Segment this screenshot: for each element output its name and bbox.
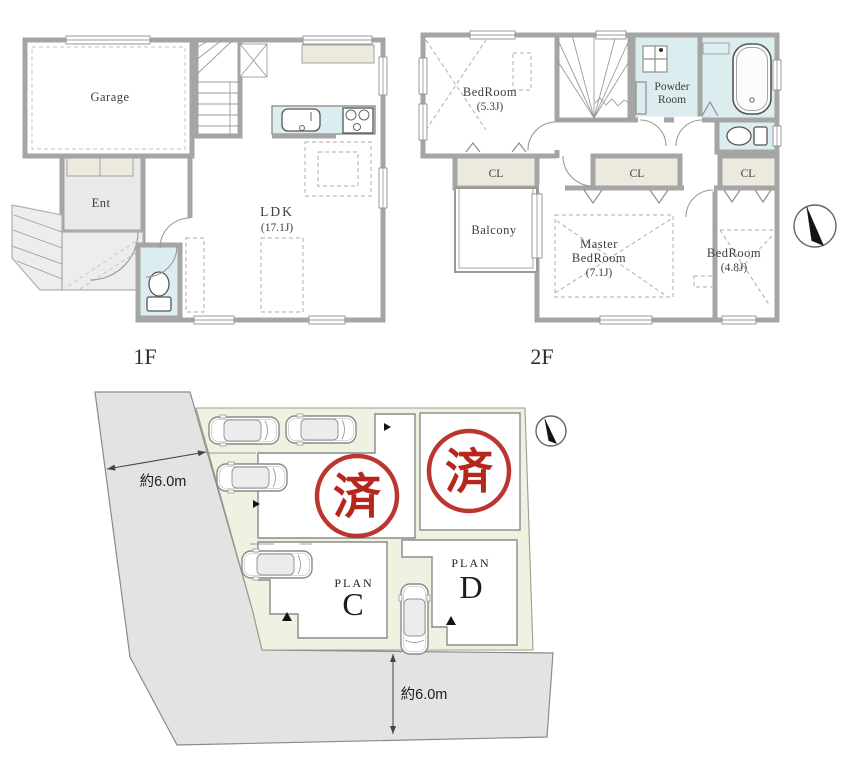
car-icon	[209, 415, 279, 446]
closet-c-label: CL	[741, 168, 756, 180]
floorplan-drawing: Garage Ent LDK (17.1J) 1F	[0, 0, 852, 768]
2f-north-compass-icon	[794, 205, 836, 247]
plan-d-word: PLAN	[451, 556, 490, 570]
sold-stamp-text: 済	[445, 444, 494, 500]
bedroom2-size-label: (4.8J)	[721, 262, 748, 274]
1f-stairs	[196, 40, 240, 136]
sold-stamp-right: 済	[429, 431, 509, 511]
site-plan: 済 済 PLAN C PLAN D 約6.0m 約6.0m	[95, 392, 566, 745]
plan-d-letter: D	[459, 569, 482, 605]
balcony-label: Balcony	[471, 223, 516, 237]
floor1-title: 1F	[133, 344, 156, 369]
floor2-title: 2F	[530, 344, 553, 369]
kitchen-stove-icon	[343, 108, 373, 133]
powder-label-2: Room	[658, 94, 686, 106]
road-width-west-label: 約6.0m	[140, 473, 187, 490]
bathtub-icon	[733, 44, 771, 114]
kitchen-sink-icon	[282, 109, 320, 131]
plan-c-letter: C	[342, 586, 363, 622]
master-label-2: BedRoom	[572, 251, 626, 265]
2f-master-door-gap	[539, 185, 565, 192]
bedroom1-size-label: (5.3J)	[477, 101, 504, 113]
toilet-tank-icon	[147, 297, 171, 311]
master-size-label: (7.1J)	[586, 267, 613, 279]
master-label-1: Master	[580, 237, 618, 251]
car-icon	[286, 414, 356, 445]
floor-2f-plan: BedRoom (5.3J) Powder Room CL CL CL Balc…	[419, 31, 836, 369]
floorplan-sheet: Garage Ent LDK (17.1J) 1F	[0, 0, 852, 768]
sold-stamp-text: 済	[333, 469, 382, 525]
ldk-label: LDK	[260, 204, 294, 219]
ldk-size-label: (17.1J)	[261, 222, 293, 234]
toilet-bowl-icon	[149, 272, 169, 296]
car-icon	[242, 549, 312, 580]
2f-toilet-icon	[727, 127, 767, 145]
closet-a-label: CL	[489, 168, 504, 180]
1f-porch	[62, 232, 143, 290]
1f-counter	[302, 45, 374, 63]
car-icon	[399, 584, 430, 654]
site-north-compass-icon	[536, 416, 566, 446]
garage-label: Garage	[90, 90, 129, 104]
closet-b-label: CL	[630, 168, 645, 180]
car-icon	[217, 462, 287, 493]
floor-1f-plan: Garage Ent LDK (17.1J) 1F	[12, 36, 387, 369]
1f-shoe-cabinet	[67, 158, 133, 176]
1f-toilet-room	[138, 245, 180, 318]
washing-machine-icon	[643, 46, 667, 72]
entrance-label: Ent	[92, 196, 111, 210]
1f-outside-steps	[12, 205, 62, 290]
road-width-south-label: 約6.0m	[401, 686, 448, 703]
bedroom1-label: BedRoom	[463, 85, 517, 99]
1f-storage-box	[240, 44, 267, 77]
sold-stamp-left: 済	[317, 456, 397, 536]
bedroom2-label: BedRoom	[707, 246, 761, 260]
1f-kitchen	[272, 106, 375, 136]
powder-label-1: Powder	[654, 81, 689, 93]
